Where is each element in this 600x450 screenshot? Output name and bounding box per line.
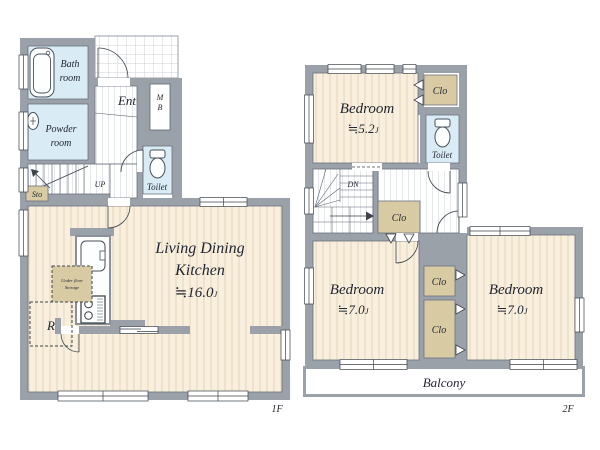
closet-d-label: Clo (432, 325, 446, 336)
washbasin-icon (28, 113, 39, 130)
meter-box-label-line1: M (156, 93, 165, 102)
floor-label-1f: 1F (271, 404, 283, 415)
toilet-door-opening-2f (428, 163, 450, 171)
toilet-label-2f: Toilet (432, 150, 453, 160)
storage-label: Sto (32, 190, 42, 199)
bathtub-icon (30, 48, 54, 97)
under-floor-label-line1: Under floor (61, 278, 83, 283)
stairs-dn-label: DN (346, 180, 359, 189)
toilet-door-opening-1f (137, 150, 143, 172)
powder-label-line1: Powder (44, 124, 76, 135)
closet-b-label: Clo (392, 213, 406, 224)
front-door-opening (98, 78, 130, 86)
floor-label-2f: 2F (562, 404, 574, 415)
meter-box-label-line2: B (158, 103, 163, 112)
hall-1f (110, 164, 137, 198)
bathroom-label-line1: Bath (61, 59, 80, 70)
toilet-label-1f: Toilet (147, 182, 168, 192)
refrigerator-label: R (46, 318, 55, 333)
partition-door-opening (61, 326, 79, 334)
powder-label-line2: room (51, 138, 72, 149)
toilet-icon-1f (150, 150, 165, 178)
ldk-label-line2: Kitchen (174, 262, 225, 279)
under-floor-label-line2: Storage (65, 285, 79, 290)
porch-tile (95, 36, 178, 78)
room-bedroom-b (313, 241, 419, 360)
bedroom-c-label: Bedroom (489, 282, 544, 298)
ldk-door-opening (108, 198, 130, 206)
closet-a-label: Clo (433, 86, 447, 97)
room-bedroom-a (313, 73, 418, 163)
bedroom-b-label: Bedroom (330, 282, 385, 298)
under-floor-storage-box (52, 266, 92, 302)
bathroom-label-line2: room (60, 73, 81, 84)
ldk-label-line1: Living Dining (154, 240, 244, 257)
closet-c-label: Clo (432, 277, 446, 288)
staircase-2f-floor (313, 169, 373, 233)
entrance-label: Ent (117, 93, 136, 108)
sliding-opening (120, 327, 158, 334)
stairs-up-label: UP (95, 180, 106, 189)
floor-plan-drawing: Bath room Powder room Ent M B Toilet UP … (0, 0, 600, 450)
balcony-label: Balcony (423, 375, 466, 390)
bedroom-a-label: Bedroom (340, 101, 395, 117)
toilet-icon-2f (435, 119, 450, 147)
ldk-size-label: ≒16.0J (175, 285, 219, 301)
floor-plan-page: Bath room Powder room Ent M B Toilet UP … (0, 0, 600, 450)
